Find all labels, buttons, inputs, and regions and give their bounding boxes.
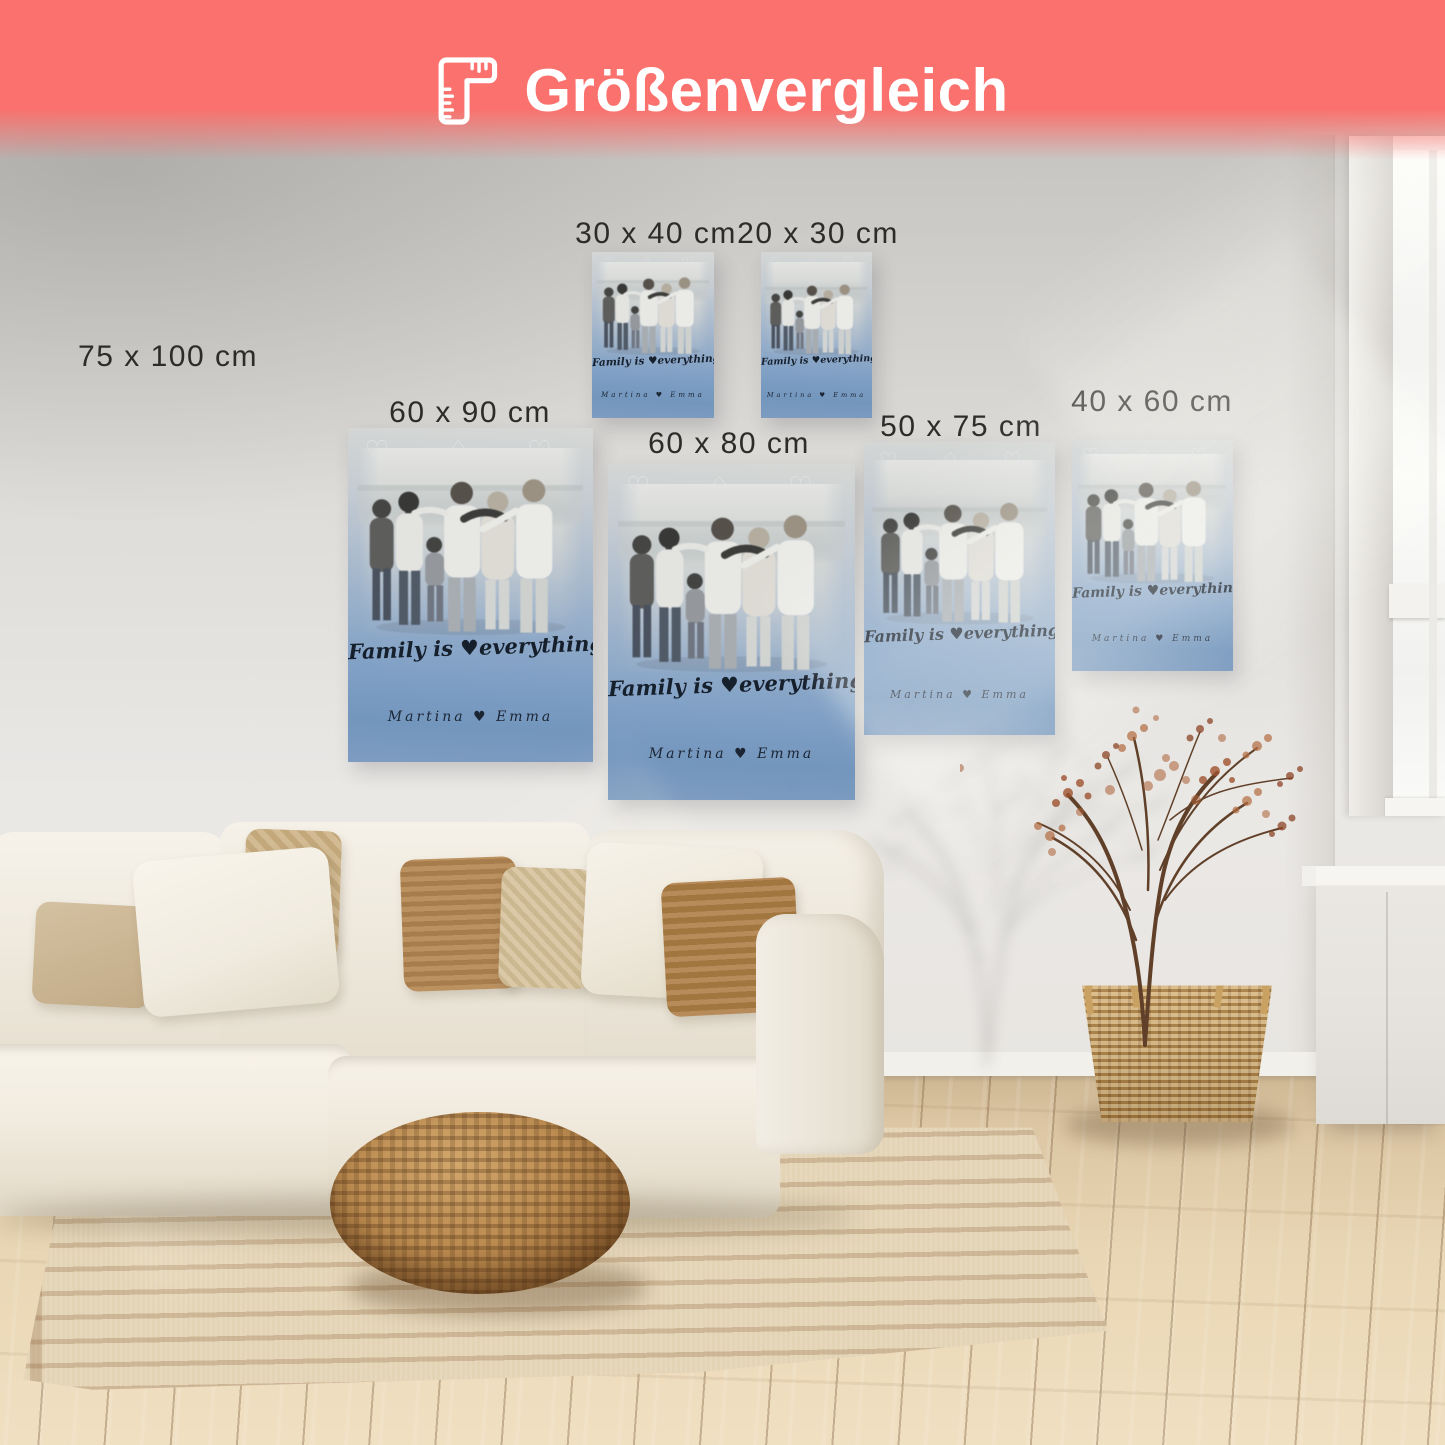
- dried-plant: [960, 590, 1360, 1060]
- dried-plant-branches: [960, 590, 1360, 1060]
- folding-ruler-icon: [436, 54, 498, 128]
- header-banner: Größenvergleich: [0, 0, 1445, 160]
- size-label-s30x40: 30 x 40 cm: [575, 219, 737, 249]
- poster-s20x30: Family is ♥everything ♡. Martina ♥ Emma: [761, 252, 872, 418]
- poster-photo: [1078, 454, 1226, 586]
- poster-photo: [765, 262, 867, 357]
- size-label-s60x90: 60 x 90 cm: [389, 398, 551, 428]
- sofa-armrest: [756, 914, 884, 1154]
- family-silhouettes: [358, 448, 583, 638]
- header-content: Größenvergleich: [436, 22, 1008, 160]
- size-label-s40x60: 40 x 60 cm: [1071, 387, 1233, 417]
- poster-photo: [597, 262, 709, 357]
- poster-names: Martina ♥ Emma: [592, 391, 714, 399]
- size-label-s75x100: 75 x 100 cm: [78, 342, 258, 372]
- poster-s30x40: Family is ♥everything ♡. Martina ♥ Emma: [592, 252, 714, 418]
- size-label-s20x30: 20 x 30 cm: [737, 219, 899, 249]
- rattan-pouf: [330, 1112, 630, 1294]
- poster-names: Martina ♥ Emma: [761, 391, 872, 399]
- family-silhouettes: [597, 262, 709, 357]
- size-label-s60x80: 60 x 80 cm: [648, 429, 810, 459]
- poster-photo: [358, 448, 583, 638]
- family-silhouettes: [765, 262, 867, 357]
- pillow-beige-textured: [498, 866, 594, 989]
- size-comparison-image: 75 x 100 cm30 x 40 cm: [0, 0, 1445, 1445]
- page-title: Größenvergleich: [524, 61, 1008, 121]
- family-silhouettes: [1078, 454, 1226, 586]
- size-label-s50x75: 50 x 75 cm: [880, 412, 1042, 442]
- poster-names: Martina ♥ Emma: [348, 709, 593, 725]
- poster-s60x90: Family is ♥everything ♡. Martina ♥ Emma: [348, 428, 593, 762]
- sofa-seat-cushion: [0, 1044, 350, 1216]
- pillow-white: [132, 846, 341, 1018]
